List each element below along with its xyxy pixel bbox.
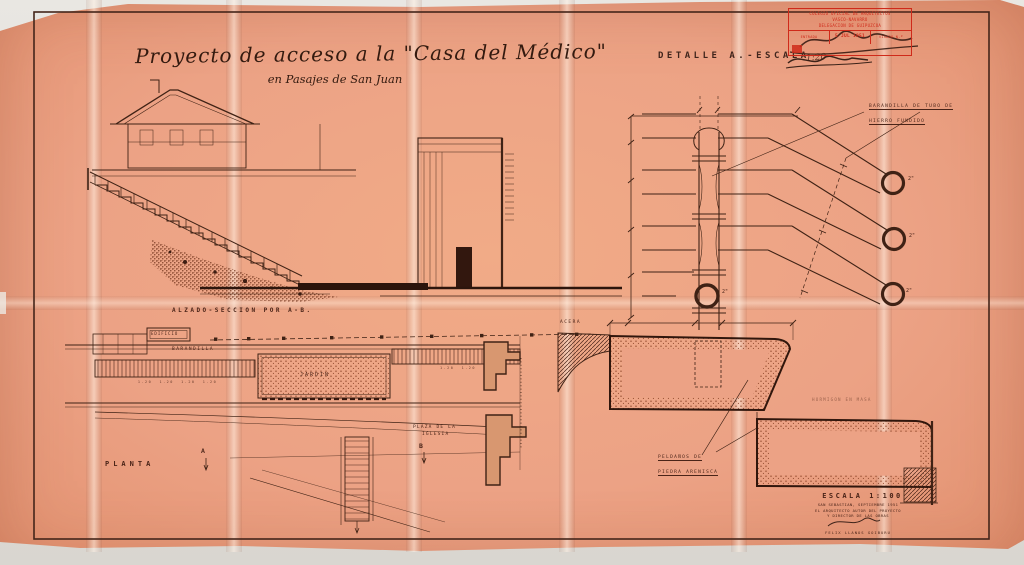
stamp-line3: DELEGACION DE GUIPUZCOA	[789, 23, 911, 29]
scanned-drawing-sheet: Proyecto de acceso a la "Casa del Médico…	[0, 0, 1024, 565]
steps-material-line2: PIEDRA ARENISCA	[658, 470, 718, 476]
plaza-label-line2: IGLESIA	[422, 432, 449, 438]
jardin-label: JARDIN	[300, 372, 330, 378]
stamp-cell-left: ENTRADA	[789, 31, 830, 44]
tube-diameter-label: 2"	[722, 289, 728, 295]
stamp-cell-right: VISADO N.º	[871, 31, 911, 44]
section-marker-a: A	[201, 447, 205, 455]
railing-material-line1: BARANDILLA DE TUBO DE	[869, 104, 953, 110]
elevation-caption: ALZADO-SECCION POR A-B.	[172, 307, 313, 315]
plan-dimension-row-right: 1.20 1.20	[398, 366, 518, 370]
barandilla-label: BARANDILLA	[172, 347, 214, 353]
tube-diameter-label: 2"	[909, 233, 915, 239]
steps-material-line1: PELDAÑOS DE	[658, 455, 702, 461]
hormigon-label: HORMIGON EN MASA	[812, 397, 872, 402]
tube-diameter-label: 2"	[908, 176, 914, 182]
stamp-ink-block	[792, 45, 802, 53]
stamp-date: 5 JUL 1951	[830, 31, 871, 44]
footer-line3: Y DIRECTOR DE LAS OBRAS	[793, 514, 923, 519]
steps-material-label: PELDAÑOS DE PIEDRA ARENISCA	[642, 447, 718, 483]
footer-scale: ESCALA 1:100	[805, 492, 920, 501]
railing-material-line2: HIERRO FUNDIDO	[869, 119, 925, 125]
tube-diameter-label: 2"	[906, 288, 912, 294]
railing-material-label: BARANDILLA DE TUBO DE HIERRO FUNDIDO	[853, 96, 953, 132]
sheet-title: Proyecto de acceso a la "Casa del Médico…	[135, 40, 535, 69]
plan-drawing	[65, 328, 592, 533]
acera-label: ACERA	[560, 320, 581, 326]
plaza-label-line1: PLAZA DE LA	[413, 425, 456, 431]
plan-caption: PLANTA	[105, 460, 154, 469]
elevation-drawing	[88, 80, 622, 302]
detail-a-heading: DETALLE A.-ESCALA	[658, 51, 810, 62]
edificio-label: EDIFICIO	[151, 331, 178, 336]
footer-architect-name: FELIX LLANOS GOIBURU	[793, 531, 923, 536]
sheet-subtitle: en Pasajes de San Juan	[135, 72, 535, 86]
section-marker-b: B	[419, 442, 423, 450]
plan-dimension-row-left: 1.20 1.20 1.20 1.20	[100, 380, 255, 384]
architects-college-stamp: COLEGIO OFICIAL DE ARQUITECTOS VASCO-NAV…	[788, 8, 912, 56]
step-detail-drawing	[558, 320, 938, 505]
